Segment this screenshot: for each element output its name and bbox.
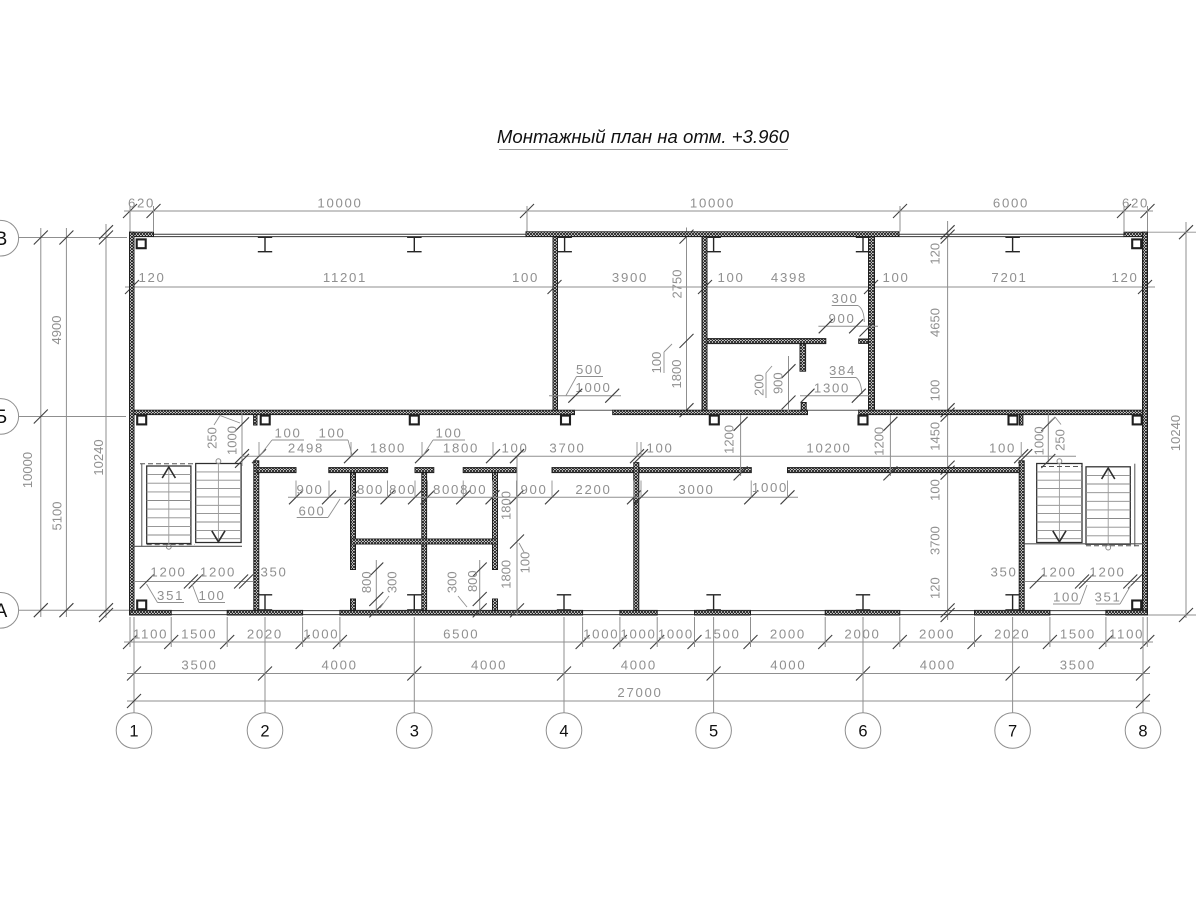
svg-text:1000: 1000 <box>225 426 240 455</box>
svg-text:900: 900 <box>520 482 547 497</box>
svg-text:384: 384 <box>829 363 856 378</box>
svg-text:3700: 3700 <box>549 441 585 456</box>
svg-text:350: 350 <box>260 565 287 580</box>
svg-text:4000: 4000 <box>322 658 358 673</box>
svg-text:1300: 1300 <box>814 381 850 396</box>
svg-text:120: 120 <box>1111 270 1138 285</box>
svg-text:200: 200 <box>752 374 767 396</box>
svg-text:4650: 4650 <box>928 308 943 337</box>
svg-text:3000: 3000 <box>678 482 714 497</box>
svg-text:351: 351 <box>1094 590 1121 605</box>
svg-text:10000: 10000 <box>20 452 35 488</box>
svg-text:27000: 27000 <box>617 685 662 700</box>
svg-text:1200: 1200 <box>200 565 236 580</box>
svg-text:1100: 1100 <box>1109 627 1144 642</box>
svg-text:8: 8 <box>1138 723 1147 741</box>
svg-text:300: 300 <box>831 291 858 306</box>
svg-text:3900: 3900 <box>612 270 648 285</box>
svg-text:100: 100 <box>646 441 673 456</box>
svg-text:3500: 3500 <box>181 658 217 673</box>
svg-text:В: В <box>0 229 7 250</box>
svg-text:1000: 1000 <box>1032 426 1047 455</box>
svg-text:1500: 1500 <box>181 627 217 642</box>
svg-text:100: 100 <box>928 479 943 501</box>
svg-text:1800: 1800 <box>669 360 684 389</box>
svg-text:А: А <box>0 601 8 622</box>
svg-text:1000: 1000 <box>303 627 339 642</box>
svg-text:100: 100 <box>717 270 744 285</box>
svg-text:800: 800 <box>465 570 480 592</box>
svg-text:100: 100 <box>928 380 943 402</box>
svg-text:5: 5 <box>709 723 718 741</box>
svg-text:1200: 1200 <box>871 427 886 456</box>
svg-text:100: 100 <box>989 441 1016 456</box>
svg-text:4000: 4000 <box>920 658 956 673</box>
svg-text:300: 300 <box>385 571 400 593</box>
svg-text:10200: 10200 <box>806 441 851 456</box>
svg-text:900: 900 <box>770 372 785 394</box>
svg-text:800: 800 <box>359 571 374 593</box>
svg-text:7201: 7201 <box>991 270 1027 285</box>
svg-text:600: 600 <box>298 504 325 519</box>
svg-text:10240: 10240 <box>1168 415 1183 451</box>
svg-text:11201: 11201 <box>323 270 367 285</box>
svg-text:6000: 6000 <box>993 196 1029 211</box>
svg-text:1500: 1500 <box>1060 627 1096 642</box>
svg-text:4000: 4000 <box>621 658 657 673</box>
svg-text:1500: 1500 <box>704 627 740 642</box>
svg-text:351: 351 <box>157 588 184 603</box>
svg-text:100: 100 <box>435 426 462 441</box>
svg-text:1000: 1000 <box>752 480 788 495</box>
svg-text:1: 1 <box>129 723 138 741</box>
svg-text:2750: 2750 <box>669 270 684 299</box>
svg-text:100: 100 <box>1053 590 1080 605</box>
svg-text:100: 100 <box>518 552 533 574</box>
svg-text:100: 100 <box>274 426 301 441</box>
svg-text:1100: 1100 <box>133 627 168 642</box>
svg-text:4900: 4900 <box>49 316 64 345</box>
svg-text:2498: 2498 <box>288 441 324 456</box>
svg-text:5100: 5100 <box>49 502 64 531</box>
svg-text:Монтажный план на отм. +3.960: Монтажный план на отм. +3.960 <box>497 126 790 147</box>
svg-text:1800: 1800 <box>443 441 479 456</box>
svg-text:2000: 2000 <box>919 627 955 642</box>
svg-text:100: 100 <box>501 441 528 456</box>
svg-text:4000: 4000 <box>471 658 507 673</box>
svg-text:350: 350 <box>990 565 1017 580</box>
svg-text:3700: 3700 <box>928 526 943 555</box>
svg-text:300: 300 <box>445 571 460 593</box>
svg-text:620: 620 <box>1122 196 1149 211</box>
svg-text:2: 2 <box>260 723 269 741</box>
svg-text:10000: 10000 <box>690 196 735 211</box>
svg-text:800: 800 <box>433 482 460 497</box>
svg-text:100: 100 <box>882 270 909 285</box>
svg-text:900: 900 <box>828 311 855 326</box>
svg-text:120: 120 <box>928 577 943 599</box>
svg-text:1450: 1450 <box>928 422 943 451</box>
svg-text:1800: 1800 <box>498 491 513 520</box>
svg-text:1200: 1200 <box>150 565 186 580</box>
svg-text:4000: 4000 <box>770 658 806 673</box>
svg-text:120: 120 <box>138 270 165 285</box>
svg-text:7: 7 <box>1008 723 1017 741</box>
svg-text:900: 900 <box>296 482 323 497</box>
svg-text:250: 250 <box>204 427 219 449</box>
svg-text:4398: 4398 <box>771 270 807 285</box>
svg-text:620: 620 <box>128 196 155 211</box>
svg-text:1800: 1800 <box>499 560 514 589</box>
svg-text:3500: 3500 <box>1060 658 1096 673</box>
svg-text:1000: 1000 <box>620 627 656 642</box>
svg-text:100: 100 <box>649 352 664 374</box>
svg-text:100: 100 <box>198 588 225 603</box>
svg-text:2000: 2000 <box>770 627 806 642</box>
svg-text:100: 100 <box>318 426 345 441</box>
svg-text:6500: 6500 <box>443 627 479 642</box>
svg-text:800: 800 <box>389 482 416 497</box>
svg-text:1200: 1200 <box>1089 565 1125 580</box>
svg-text:2200: 2200 <box>575 482 611 497</box>
svg-text:10240: 10240 <box>91 439 106 475</box>
svg-text:10000: 10000 <box>317 196 362 211</box>
svg-text:Б: Б <box>0 407 7 428</box>
svg-text:1000: 1000 <box>575 380 611 395</box>
svg-text:1800: 1800 <box>370 441 406 456</box>
svg-text:4: 4 <box>559 723 568 741</box>
svg-text:100: 100 <box>512 270 539 285</box>
svg-text:120: 120 <box>928 243 943 265</box>
svg-text:1000: 1000 <box>583 627 619 642</box>
svg-text:6: 6 <box>858 723 867 741</box>
svg-text:1200: 1200 <box>722 425 737 454</box>
svg-text:3: 3 <box>410 723 419 741</box>
svg-text:500: 500 <box>576 362 603 377</box>
svg-text:800: 800 <box>460 482 487 497</box>
svg-text:250: 250 <box>1053 429 1068 451</box>
svg-text:800: 800 <box>357 482 384 497</box>
svg-text:1200: 1200 <box>1040 565 1076 580</box>
svg-text:1000: 1000 <box>658 627 694 642</box>
